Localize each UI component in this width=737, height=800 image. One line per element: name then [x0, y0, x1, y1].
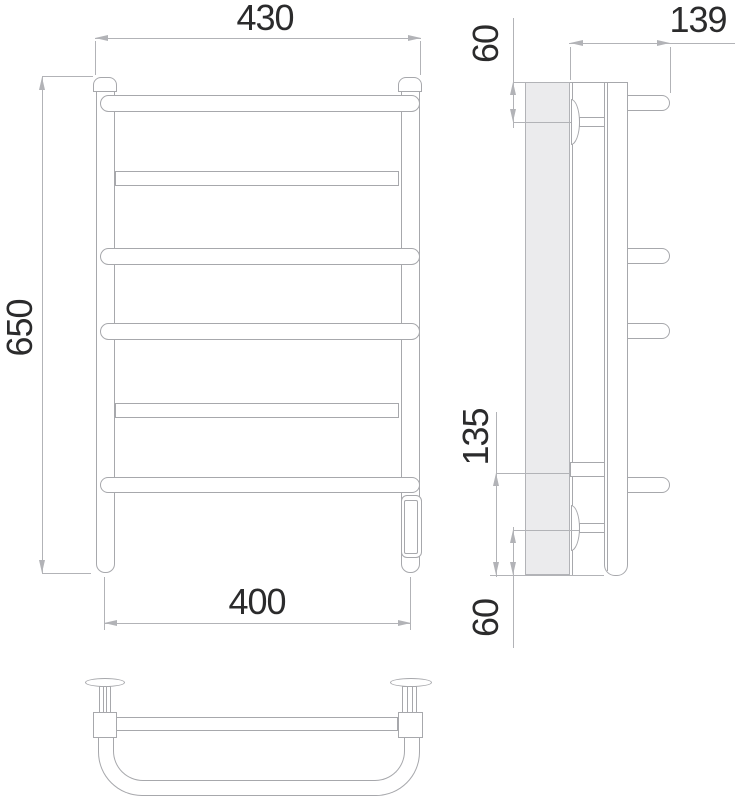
dim-139-ext-right: [670, 47, 671, 93]
bar-stub-4: [627, 477, 670, 493]
heater-housing-inner: [404, 500, 418, 554]
stem-right-top-view: [402, 686, 417, 713]
dim-400-arrow-left: [104, 620, 117, 626]
dim-label-bottom-offset: 60: [468, 586, 504, 650]
post-side-inner-line: [607, 83, 608, 571]
dim-60b-arrow-bottom: [510, 562, 516, 575]
dim-label-width-bottom: 400: [217, 584, 297, 620]
dim-430-arrow-left: [95, 35, 108, 41]
dim-60b-arrow-top: [510, 530, 516, 543]
post-block-right-top-view: [398, 712, 423, 738]
dim-label-lower-span: 135: [458, 402, 494, 472]
rail-bar-round-2: [100, 248, 420, 265]
dim-label-depth: 139: [666, 2, 730, 38]
rail-bar-round-1: [100, 95, 420, 112]
dim-135-arrow-top: [493, 473, 499, 486]
dim-650-line: [42, 77, 43, 573]
stem-right-line-2: [412, 686, 413, 713]
wall-face-line: [572, 82, 573, 575]
dim-60b-line: [513, 527, 514, 648]
dim-430-ext-left: [95, 41, 96, 75]
bracket-bottom-stem: [579, 523, 605, 533]
dim-430-ext-right: [420, 41, 421, 75]
rail-bar-round-3: [100, 323, 420, 340]
rail-bar-flat-1: [115, 171, 399, 186]
dim-135-ext-bottom: [490, 575, 604, 576]
stem-left-line-1: [103, 686, 104, 713]
wall-strip: [525, 82, 570, 575]
dim-650-ext-bottom: [42, 573, 91, 574]
bar-stub-1: [627, 95, 670, 111]
dim-60t-arrow-top: [510, 82, 516, 95]
technical-drawing-canvas: 430 650 400 60 139: [0, 0, 737, 800]
dim-430-line: [95, 38, 421, 39]
connector-tube-top-view: [116, 717, 398, 731]
dim-60b-ext-upper: [513, 530, 579, 531]
dim-135-ext-top: [496, 473, 570, 474]
dim-60t-ext-lower: [513, 122, 571, 123]
dim-430-arrow-right: [408, 35, 421, 41]
bar-stub-2: [627, 248, 670, 264]
stem-right-line-1: [407, 686, 408, 713]
post-cap-left: [93, 77, 117, 92]
dim-60t-arrow-bottom: [510, 109, 516, 122]
dim-139-ext-left: [570, 47, 571, 80]
dim-139-arrow-right: [657, 40, 670, 46]
stem-left-top-view: [99, 686, 111, 713]
dim-135-line: [496, 412, 497, 577]
post-block-left-top-view: [93, 712, 117, 738]
dim-label-top-offset: 60: [468, 12, 504, 76]
dim-650-ext-top: [42, 76, 93, 77]
bracket-top-stem: [579, 117, 605, 127]
dim-label-width-top: 430: [225, 0, 305, 36]
dim-650-arrow-bottom: [39, 560, 45, 573]
dim-400-arrow-right: [398, 620, 411, 626]
rail-bar-flat-2: [115, 403, 399, 418]
dim-650-arrow-top: [39, 77, 45, 90]
bar-stub-3: [627, 323, 670, 339]
stem-left-line-2: [106, 686, 107, 713]
post-cap-right: [398, 77, 422, 92]
rail-bar-round-4: [100, 477, 420, 493]
dim-139-arrow-left: [570, 40, 583, 46]
dim-400-line: [104, 623, 411, 624]
side-top-edge: [570, 82, 604, 83]
connector-tube-side: [570, 462, 605, 477]
dim-label-height: 650: [2, 296, 38, 360]
dim-135-arrow-bottom: [493, 562, 499, 575]
dim-139-line: [569, 43, 735, 44]
